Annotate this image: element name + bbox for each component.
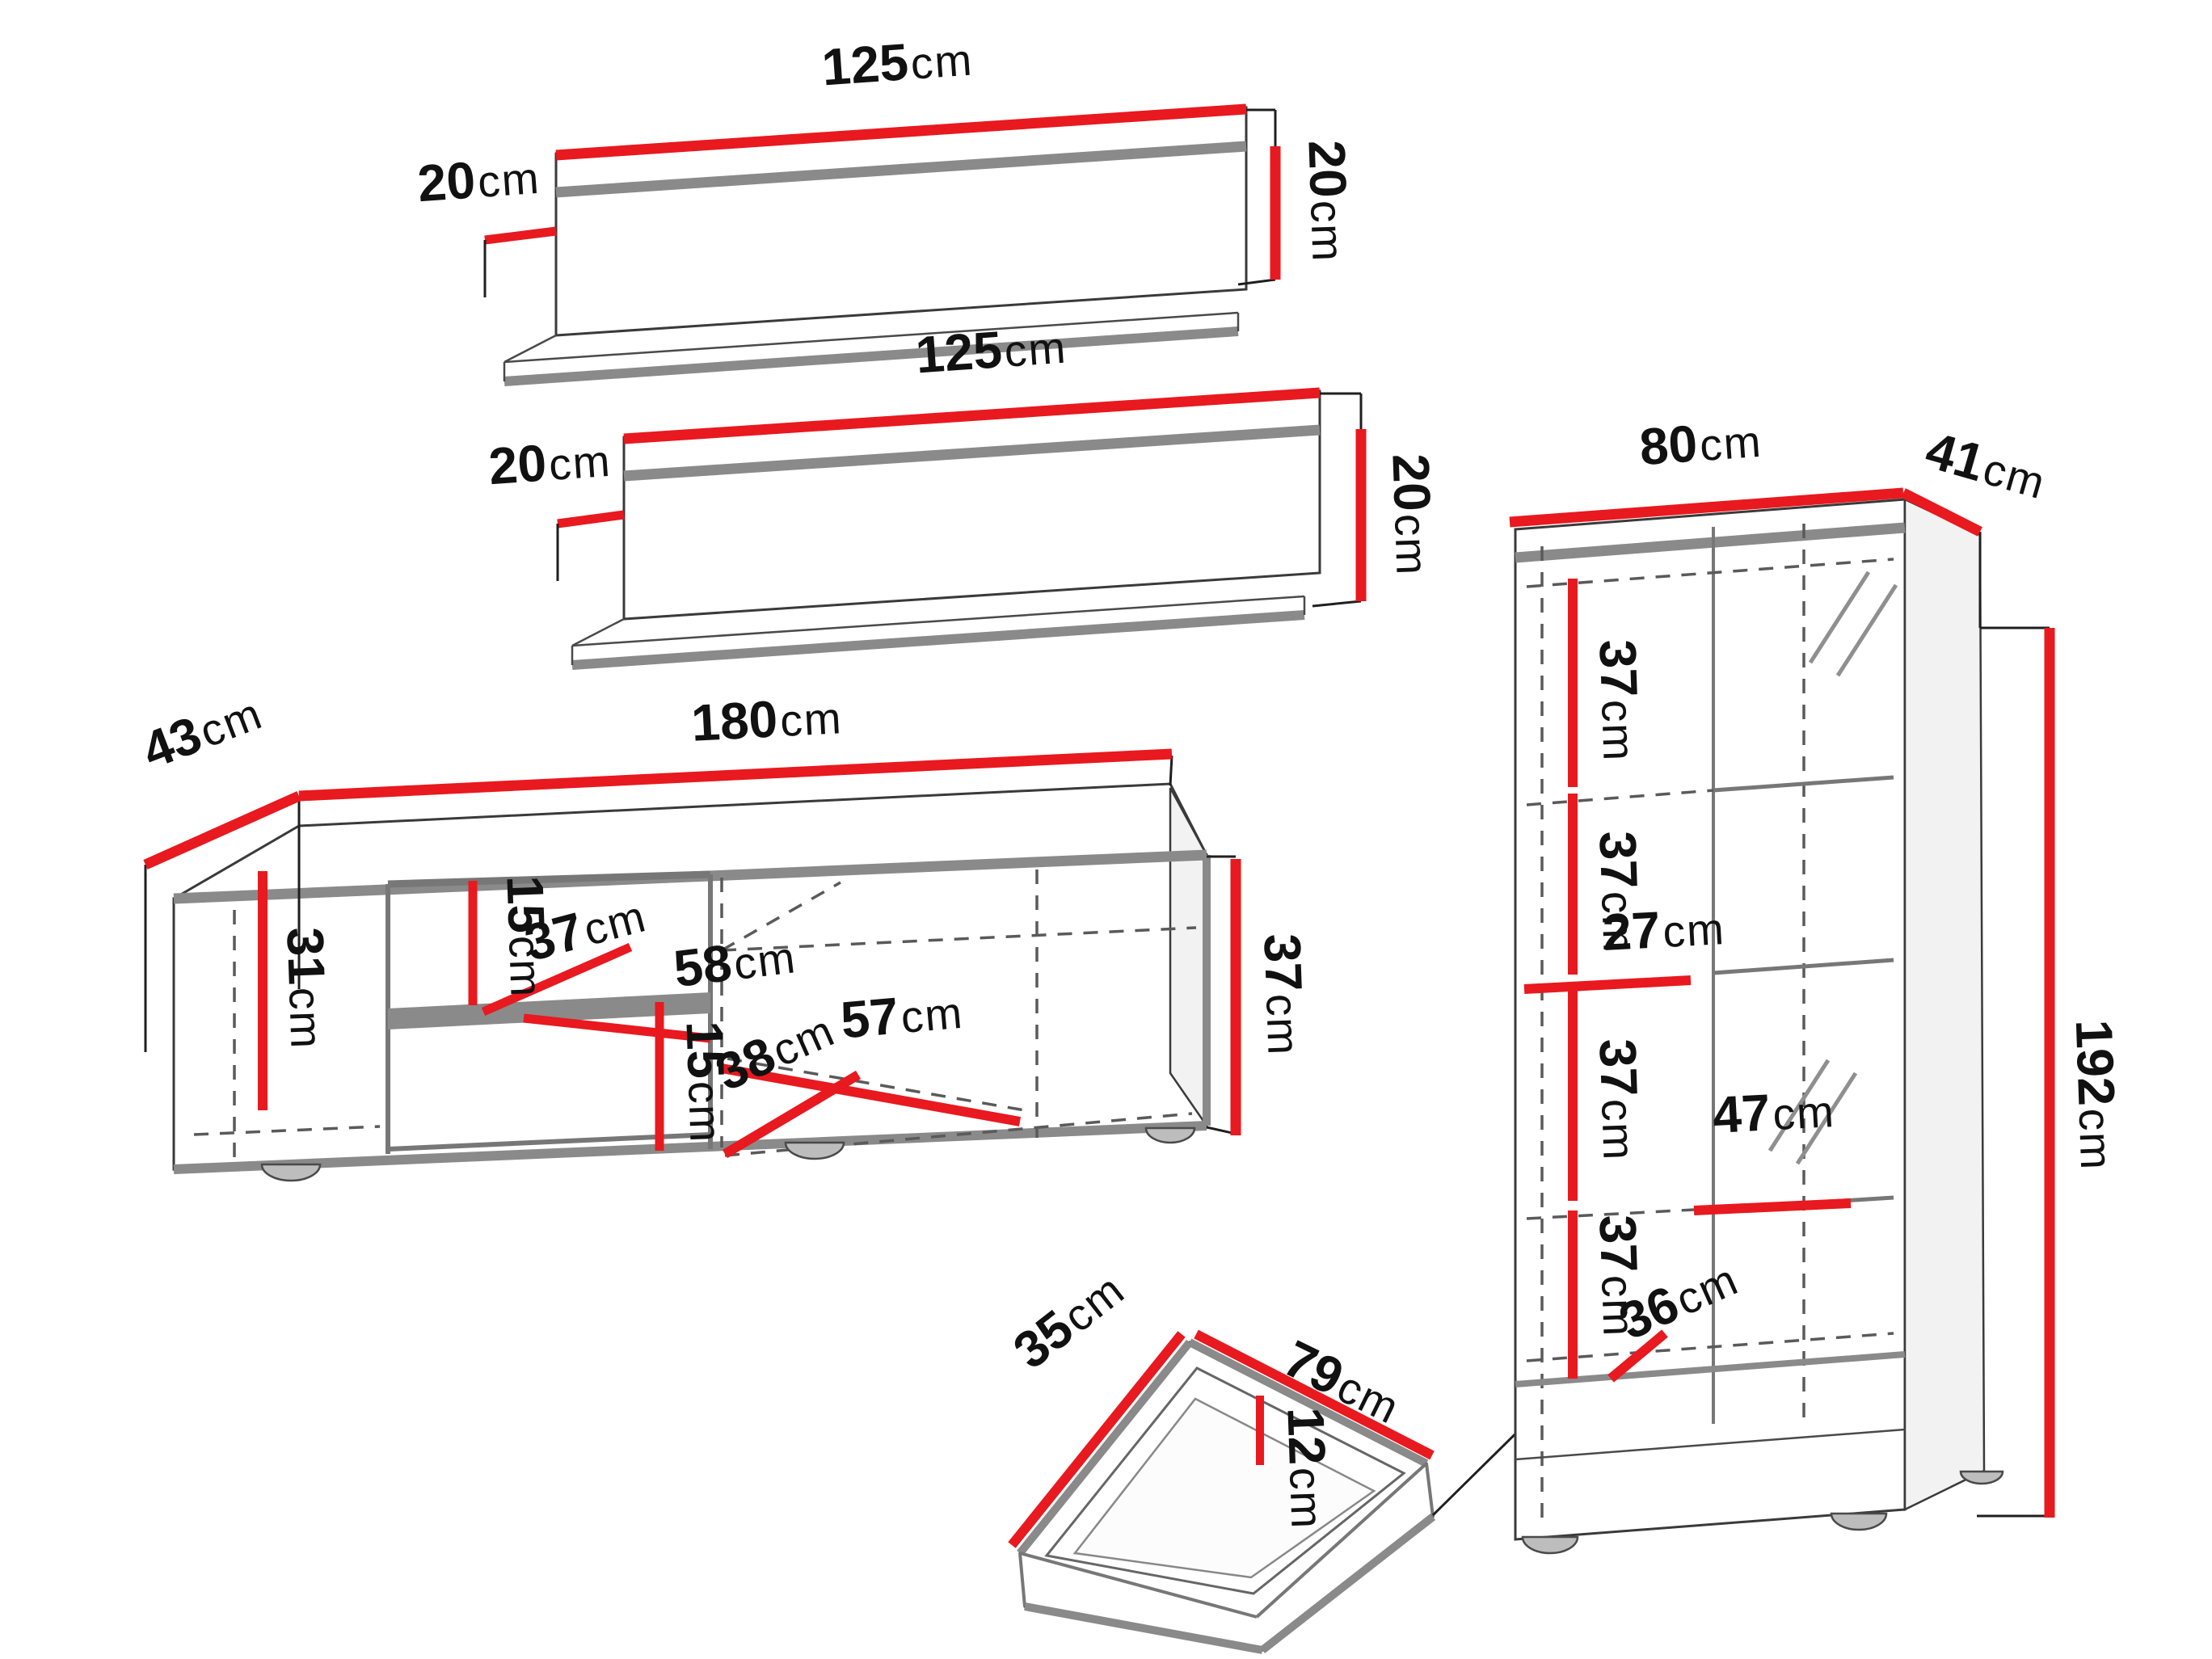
shelf2-depth-label: 20cm [487,429,613,495]
furniture-dimension-diagram: 125cm 20cm 20cm 125cm 20cm 20cm [0,0,2212,1659]
tv-stand: 43cm 180cm 31cm 15cm 37cm 58cm 15cm 38cm… [134,682,1315,1181]
wall-shelf-1: 125cm 20cm 20cm [415,28,1359,381]
tvstand-height-label: 37cm [1253,933,1315,1057]
shelf1-width-label: 125cm [820,28,975,97]
cabinet-depth-label: 41cm [1919,420,2053,510]
cabinet-section1-label: 37cm [1588,638,1650,763]
shelf2-depth-dimension-line [558,515,624,524]
shelf1-height-label: 20cm [1297,139,1359,263]
diagram-canvas: 125cm 20cm 20cm 125cm 20cm 20cm [0,0,2212,1659]
shelf1-depth-label: 20cm [415,146,541,213]
cabinet-shelf-width-label: 47cm [1711,1080,1836,1144]
cabinet-section3-label: 37cm [1588,1038,1650,1162]
cabinet-middle-width-label: 27cm [1601,897,1726,962]
drawer: 35cm 79cm 12cm [1003,1259,1433,1650]
drawer-depth-label: 35cm [1003,1259,1135,1380]
tvstand-left-inner-height-label: 31cm [276,926,338,1051]
shelf1-depth-dimension-line [485,231,556,240]
cabinet-extension-lines [1977,532,2050,1516]
cabinet-width-label: 80cm [1637,410,1763,476]
tvstand-depth-label: 43cm [134,682,269,781]
shelf2-width-label: 125cm [914,316,1069,385]
drawer-height-label: 12cm [1276,1406,1338,1531]
tvstand-width-label: 180cm [690,686,845,752]
display-cabinet: 80cm 41cm 37cm 37cm 27cm 37cm 37cm 47cm … [1510,410,2128,1553]
shelf2-height-label: 20cm [1381,453,1443,577]
cabinet-height-label: 192cm [2065,1018,2128,1172]
cabinet-body [1515,499,1984,1539]
